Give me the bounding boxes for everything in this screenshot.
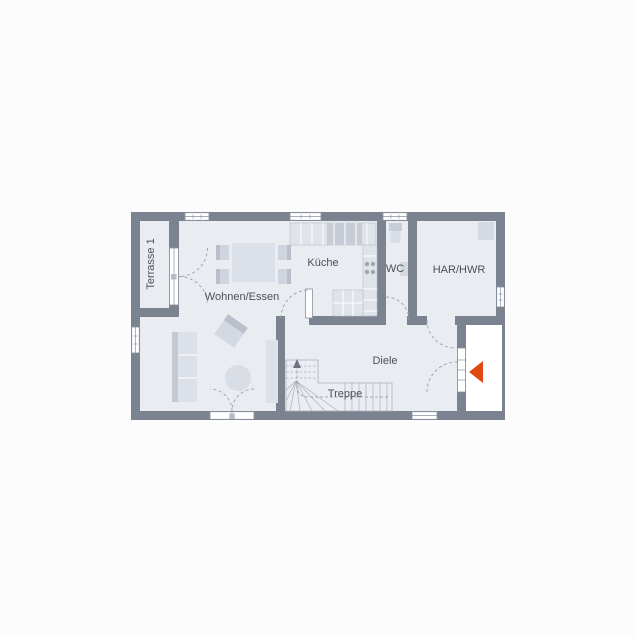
window-top-wc xyxy=(383,213,407,221)
cooktop-burner xyxy=(365,270,369,274)
cooktop-burner xyxy=(365,262,369,266)
wc-label: WC xyxy=(386,263,404,275)
treppe-label: Treppe xyxy=(328,388,362,400)
dining-chair-back xyxy=(287,269,291,284)
har-hwr-label: HAR/HWR xyxy=(433,264,486,276)
window-left-wohnen xyxy=(132,327,140,353)
kueche-label: Küche xyxy=(307,257,338,269)
cooktop-burner xyxy=(371,270,375,274)
coffee-table xyxy=(225,365,251,391)
sofa xyxy=(172,332,197,402)
cooktop-burner xyxy=(371,262,375,266)
wc-door-opening xyxy=(386,316,407,325)
wohnen-essen-label: Wohnen/Essen xyxy=(205,291,279,303)
terrasse-label: Terrasse 1 xyxy=(145,238,157,289)
toilet-tank xyxy=(389,223,402,231)
window-bottom-diele xyxy=(412,412,437,420)
door-handle xyxy=(229,414,235,420)
har-appliance xyxy=(478,222,494,240)
floor-plan-svg: Terrasse 1 Wohnen/Essen Küche WC HAR/HWR… xyxy=(131,212,505,420)
dining-chair-back xyxy=(216,245,220,260)
window-right-har xyxy=(497,287,505,307)
sofa-back xyxy=(172,332,178,402)
entrance-niche xyxy=(466,325,502,411)
diele-label: Diele xyxy=(372,355,397,367)
dining-table xyxy=(232,243,275,282)
window-top-wohnen xyxy=(185,213,209,221)
window-top-kueche xyxy=(290,213,321,221)
sideboard xyxy=(266,340,278,403)
door-handle xyxy=(171,274,177,280)
dining-chair-back xyxy=(287,245,291,260)
floor-plan: Terrasse 1 Wohnen/Essen Küche WC HAR/HWR… xyxy=(131,212,505,420)
toilet-bowl xyxy=(391,231,401,243)
har-door-opening xyxy=(427,316,455,325)
dining-chair-back xyxy=(216,269,220,284)
